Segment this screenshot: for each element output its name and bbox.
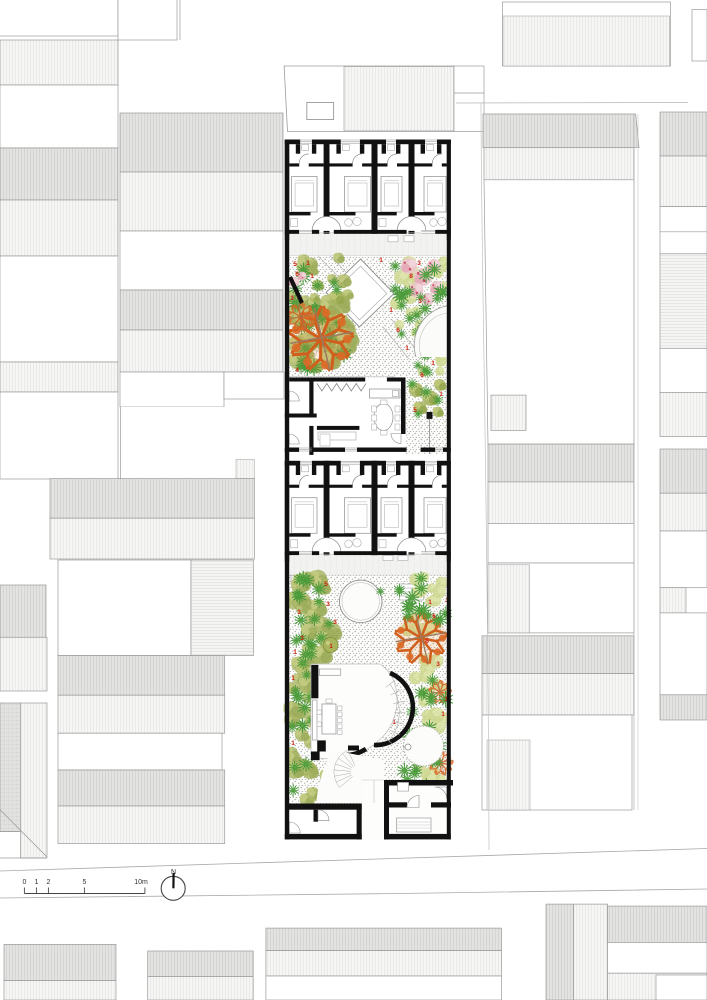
svg-text:1: 1 xyxy=(34,879,38,886)
svg-text:1: 1 xyxy=(439,391,443,398)
svg-text:6: 6 xyxy=(396,327,400,334)
svg-text:8: 8 xyxy=(409,273,413,280)
svg-text:5: 5 xyxy=(413,407,417,414)
svg-text:1: 1 xyxy=(405,345,409,352)
svg-text:0: 0 xyxy=(22,879,26,886)
svg-text:6: 6 xyxy=(425,638,429,645)
svg-text:3: 3 xyxy=(326,601,330,608)
svg-text:3: 3 xyxy=(290,295,294,302)
svg-text:3: 3 xyxy=(417,260,421,267)
svg-text:N: N xyxy=(171,869,176,876)
svg-text:1: 1 xyxy=(306,260,310,267)
svg-text:6: 6 xyxy=(432,613,436,620)
svg-text:5: 5 xyxy=(293,261,297,268)
svg-text:1: 1 xyxy=(329,643,333,650)
svg-text:1: 1 xyxy=(441,711,445,718)
svg-text:1: 1 xyxy=(428,599,432,606)
svg-text:6: 6 xyxy=(295,271,299,278)
svg-text:3: 3 xyxy=(436,661,440,668)
svg-text:4: 4 xyxy=(295,367,299,374)
svg-text:5: 5 xyxy=(82,879,86,886)
svg-text:1: 1 xyxy=(310,273,314,280)
svg-text:5: 5 xyxy=(324,581,328,588)
svg-text:3: 3 xyxy=(300,635,304,642)
svg-text:1: 1 xyxy=(293,649,297,656)
svg-text:3: 3 xyxy=(418,298,422,305)
svg-text:3: 3 xyxy=(297,609,301,616)
svg-text:1: 1 xyxy=(379,257,383,264)
svg-text:1: 1 xyxy=(389,307,393,314)
svg-text:3: 3 xyxy=(333,619,337,626)
svg-text:10m: 10m xyxy=(134,879,148,886)
svg-text:1: 1 xyxy=(431,360,435,367)
svg-text:2: 2 xyxy=(46,879,50,886)
svg-text:1: 1 xyxy=(291,675,295,682)
svg-text:1: 1 xyxy=(291,740,295,747)
